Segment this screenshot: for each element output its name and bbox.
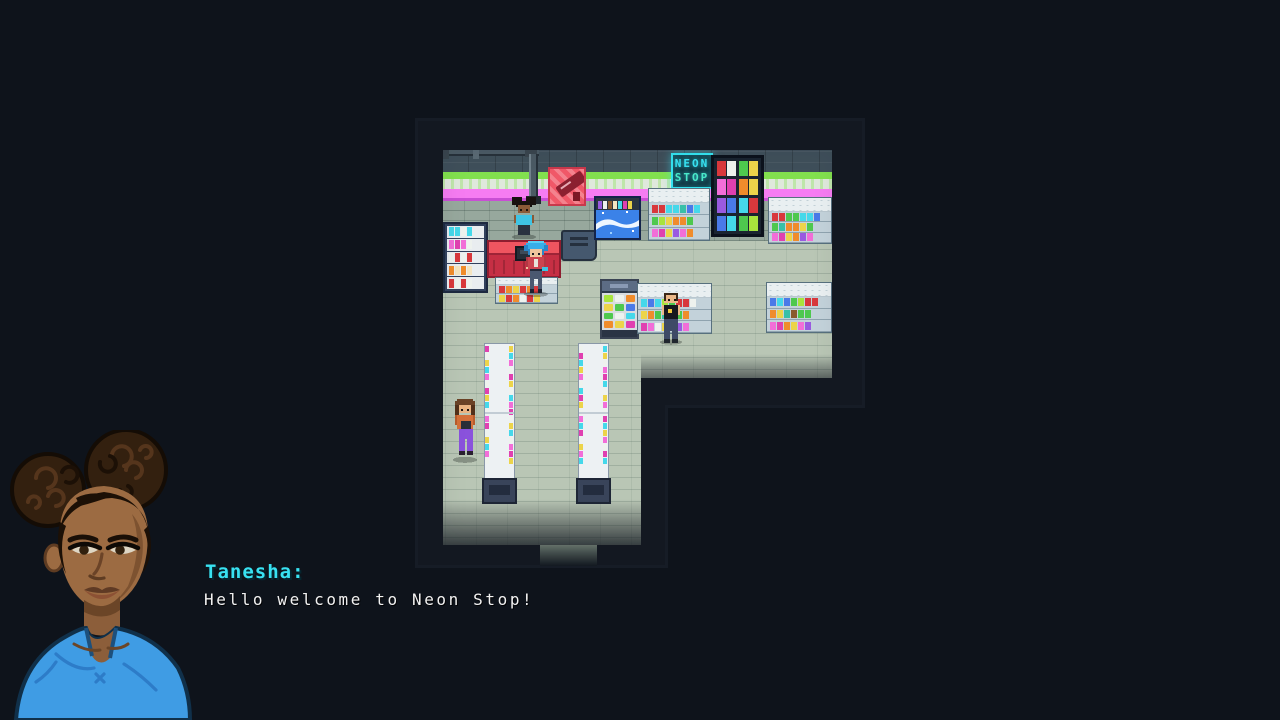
- freezer-row: [447, 277, 484, 289]
- card-reader-kiosk: [561, 230, 597, 261]
- slushie-hood: [602, 281, 637, 293]
- npc-shopper-tank-top: [658, 293, 684, 345]
- shelf-top: [649, 189, 709, 203]
- sign-line-1: NEON: [675, 157, 710, 171]
- shelf-row: [769, 212, 831, 222]
- slushie-base: [602, 330, 637, 337]
- tanesha-portrait: [0, 430, 200, 720]
- slushie-cups: [602, 293, 637, 330]
- soda-can-graphic: [555, 170, 586, 197]
- magazine-cell: [739, 216, 758, 231]
- shelf-row: [649, 215, 709, 227]
- player-character: [520, 241, 552, 297]
- magazine-cell: [739, 179, 758, 194]
- game-viewport[interactable]: NEON STOP: [0, 0, 1280, 720]
- freezer-row: [447, 252, 484, 264]
- dialogue-text: Hello welcome to Neon Stop!: [204, 590, 534, 609]
- magazine-cell: [717, 198, 736, 213]
- shelf-top: [767, 283, 831, 297]
- magazine-cell: [717, 216, 736, 231]
- shelf-row: [769, 222, 831, 232]
- wave-graphic: [596, 208, 639, 238]
- aisle-divider: [485, 412, 514, 414]
- dialogue-box[interactable]: [0, 430, 1280, 720]
- shelf-row: [767, 320, 831, 332]
- magazine-rack: [711, 155, 764, 237]
- sign-line-2: STOP: [675, 171, 710, 185]
- shelf-row: [769, 233, 831, 243]
- magazine-cell: [739, 161, 758, 176]
- shelf-row: [767, 297, 831, 309]
- poster-logo: [573, 192, 580, 201]
- magazine-cell: [717, 179, 736, 194]
- slushie-stand: [600, 279, 639, 339]
- ice-cream-freezer: [443, 222, 488, 293]
- dialogue-speaker-name: Tanesha:: [205, 561, 305, 583]
- freezer-row: [447, 264, 484, 276]
- drink-cooler-wave: [594, 196, 641, 240]
- freezer-row: [447, 239, 484, 251]
- freezer-row: [447, 226, 484, 238]
- shelf-row: [767, 309, 831, 321]
- shelf-row: [649, 228, 709, 240]
- wall-shelf: [648, 188, 710, 241]
- gondola-shelf: [766, 282, 832, 333]
- magazine-cell: [739, 198, 758, 213]
- npc-clerk-tanesha: [510, 197, 538, 239]
- aisle-divider: [579, 412, 608, 414]
- magazine-cell: [717, 161, 736, 176]
- floor-shadow-right: [641, 354, 832, 378]
- shelf-row: [649, 203, 709, 215]
- neon-stop-sign: NEON STOP: [671, 153, 713, 189]
- soda-poster: [548, 167, 586, 206]
- wall-shelf: [768, 197, 832, 244]
- shelf-top: [769, 198, 831, 212]
